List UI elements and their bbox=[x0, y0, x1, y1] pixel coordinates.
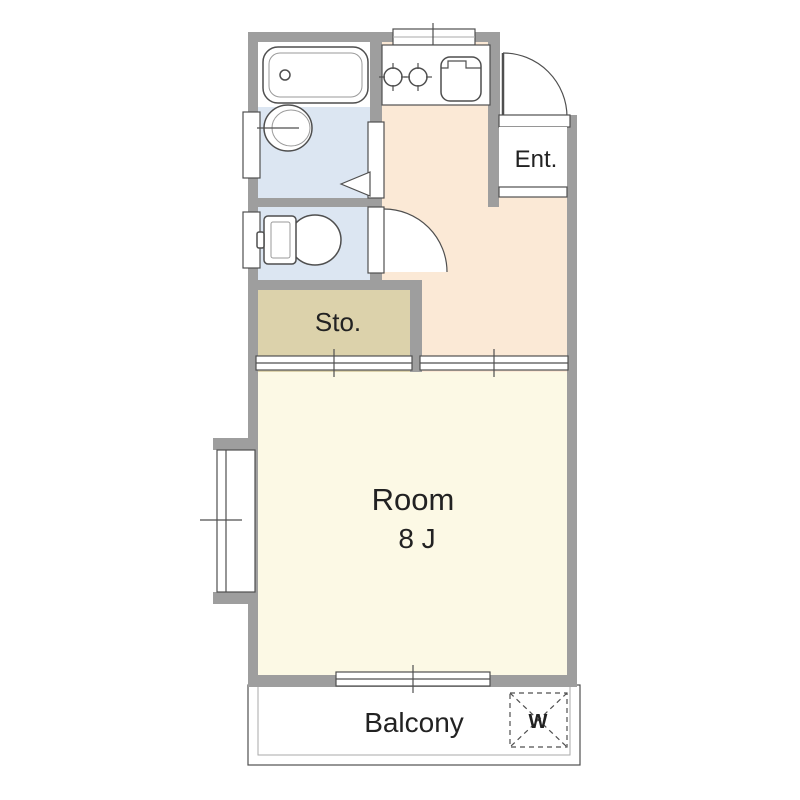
kitchen-sink-icon bbox=[441, 57, 481, 101]
toilet-icon bbox=[257, 215, 341, 265]
room-window bbox=[200, 450, 255, 592]
storage-label: Sto. bbox=[315, 307, 361, 337]
wall-room-window-stub-top bbox=[213, 438, 258, 450]
main-room-size-label: 8 J bbox=[398, 523, 435, 554]
entrance-step bbox=[499, 187, 567, 197]
wall-right bbox=[567, 115, 577, 687]
entrance-label: Ent. bbox=[515, 146, 558, 173]
floor-plan: Room 8 J Sto. Ent. Balcony W bbox=[0, 0, 800, 800]
wall-room-window-stub-bottom bbox=[213, 592, 258, 604]
balcony-label: Balcony bbox=[364, 707, 464, 738]
toilet-door-leaf bbox=[368, 207, 384, 273]
entrance-threshold bbox=[499, 115, 570, 127]
bathroom-window bbox=[243, 112, 260, 178]
washer-mark-label: W bbox=[529, 711, 548, 733]
wall-bath-kitchen-divider bbox=[370, 42, 382, 122]
wall-entrance-left bbox=[488, 115, 499, 207]
wall-storage-top bbox=[248, 280, 422, 290]
bathtub-icon bbox=[263, 47, 368, 103]
wall-bath-toilet bbox=[258, 198, 382, 207]
main-room-label: Room bbox=[372, 482, 455, 517]
kitchen-counter bbox=[379, 45, 490, 105]
